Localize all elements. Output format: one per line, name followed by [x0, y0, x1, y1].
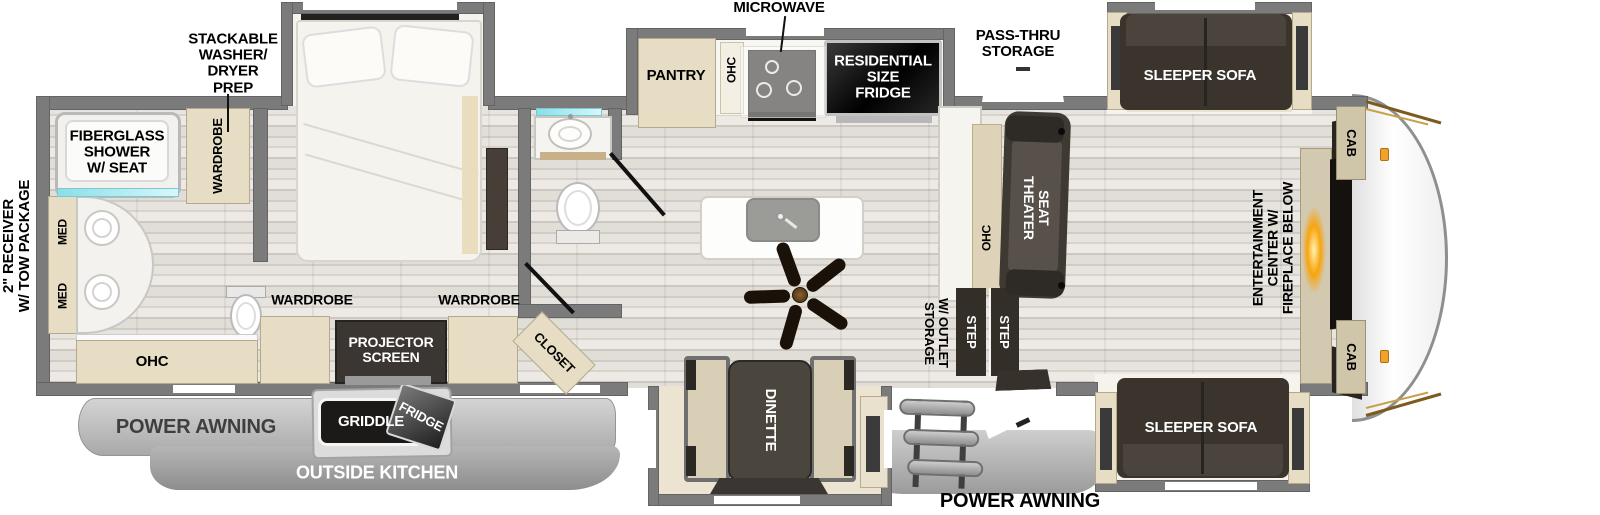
wall-bottom-entry — [1056, 382, 1098, 396]
bath-ohc-label: OHC — [136, 354, 169, 370]
dinette-label: DINETTE — [762, 389, 778, 452]
theater-seat-arm — [1006, 115, 1065, 143]
bed-slide-window — [303, 2, 457, 10]
theater-seat-arm — [1006, 269, 1065, 297]
microwave-label: MICROWAVE — [733, 0, 824, 16]
power-awning-left-label: POWER AWNING — [116, 417, 276, 439]
bath-toilet-icon — [236, 302, 256, 330]
cupholder-icon — [1058, 128, 1065, 135]
rv-floorplan: POWER AWNING OUTSIDE KITCHEN POWER AWNIN… — [0, 0, 1600, 515]
med-cabinet — [48, 196, 78, 334]
power-awning-right-label: POWER AWNING — [940, 491, 1100, 513]
entertainment-tv — [1330, 156, 1352, 329]
bedroom-dresser — [486, 148, 508, 250]
pass-thru-handle-icon — [1016, 67, 1030, 71]
wall-top-rear — [36, 96, 288, 110]
kitchen-slide-window — [746, 28, 824, 36]
sleeper-sofa-top-label: SLEEPER SOFA — [1144, 68, 1257, 84]
dinette-bench-arm — [844, 360, 854, 390]
wall-midbath-left — [518, 108, 531, 314]
shower-glass — [57, 188, 179, 197]
sofa-top-slide-window — [1155, 2, 1255, 10]
cab-bottom-label: CAB — [1344, 343, 1358, 371]
step-2-label: STEP — [997, 315, 1011, 348]
bedroom-wardrobe-left — [260, 316, 330, 384]
cap-handle-icon — [1380, 350, 1389, 363]
entry-post-window — [866, 416, 880, 472]
kitchen-slide-wall-left — [626, 28, 638, 115]
peninsula-cabinet — [972, 124, 1002, 296]
midbath-sink-icon — [558, 126, 582, 142]
wall-bath-divider — [253, 108, 268, 262]
pass-thru-label: PASS-THRU STORAGE — [976, 28, 1061, 60]
dinette-slide-window — [714, 496, 800, 504]
front-cap — [1352, 94, 1448, 422]
entertainment-label: ENTERTAINMENT CENTER W/ FIREPLACE BELOW — [1250, 182, 1295, 314]
entry-steps-icon — [896, 394, 991, 493]
pantry-label: PANTRY — [647, 68, 706, 84]
cap-handle-icon — [1380, 148, 1389, 161]
peninsula-ohc-label: OHC — [981, 225, 994, 251]
theater-seat-label: THEATER SEAT — [1021, 176, 1051, 240]
dinette-bench-arm — [686, 360, 696, 390]
vanity-sink-icon — [92, 218, 112, 238]
med-label-top: MED — [57, 219, 70, 245]
microwave-overlay — [740, 46, 826, 118]
bath-wardrobe-label: WARDROBE — [211, 118, 225, 194]
sofa-bottom-slide-window — [1165, 482, 1257, 490]
receiver-label: 2" RECEIVER W/ TOW PACKAGE — [1, 180, 33, 312]
sofa-bottom-slide-post-window — [1292, 408, 1304, 470]
kitchen-slide-wall-right — [943, 28, 955, 115]
bed-slide-wall-right — [483, 2, 495, 106]
residential-fridge-base — [836, 116, 932, 123]
washer-prep-pointer — [227, 94, 229, 132]
sofa-bottom-slide-post-window — [1100, 408, 1112, 470]
window-bottom-bath — [173, 385, 235, 393]
outside-kitchen-label: OUTSIDE KITCHEN — [296, 463, 458, 482]
dinette-bench-arm — [844, 446, 854, 476]
midbath-toilet-icon — [564, 190, 592, 226]
med-label-bottom: MED — [57, 283, 70, 309]
bed-slide-wall-left — [281, 2, 293, 106]
shower-label: FIBERGLASS SHOWER W/ SEAT — [70, 129, 165, 178]
pillow — [301, 25, 387, 88]
storage-outlet-label: STORAGE W/ OUTLET — [922, 298, 950, 368]
ceiling-fan-icon — [752, 247, 848, 343]
midbath-vanity-base — [540, 152, 606, 160]
cab-top-label: CAB — [1344, 129, 1358, 157]
bed-blanket-accent — [462, 96, 478, 254]
kitchen-ohc-label: OHC — [726, 57, 739, 83]
sofa-top-slide-post-window — [1296, 26, 1308, 90]
dinette-bench-arm — [686, 446, 696, 476]
midbath-toilet-tank — [556, 230, 600, 244]
fireplace-glow — [1302, 206, 1326, 294]
residential-fridge-label: RESIDENTIAL SIZE FRIDGE — [834, 54, 932, 103]
pillow — [389, 24, 474, 88]
vanity-sink-icon — [92, 282, 112, 302]
sleeper-sofa-top-seam — [1204, 18, 1207, 106]
bedroom-wardrobe-right — [448, 316, 518, 384]
cupholder-icon — [1058, 282, 1065, 289]
midbath-faucet-icon — [568, 114, 573, 119]
wardrobe-right-label: WARDROBE — [438, 292, 520, 307]
griddle-label: GRIDDLE — [338, 414, 404, 430]
sleeper-sofa-bottom-label: SLEEPER SOFA — [1145, 420, 1258, 436]
projector-label: PROJECTOR SCREEN — [348, 335, 433, 365]
step-1-label: STEP — [964, 315, 978, 348]
wardrobe-left-label: WARDROBE — [271, 292, 353, 307]
washer-prep-label: STACKABLE WASHER/ DRYER PREP — [188, 32, 278, 97]
dinette-slide-window — [884, 410, 892, 468]
dinette-slide-window — [648, 410, 656, 468]
entry-landing-mat — [995, 369, 1052, 391]
projector-sill — [345, 376, 431, 385]
dinette-mat — [710, 478, 828, 494]
